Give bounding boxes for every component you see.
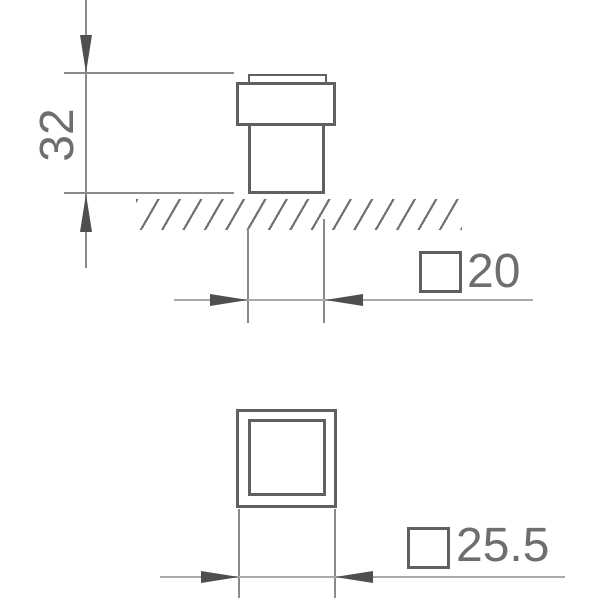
square-section-symbol-icon <box>419 251 462 293</box>
arrowhead-right-icon <box>210 294 248 306</box>
arrowhead-up-icon <box>80 194 92 232</box>
arrowhead-right-icon <box>201 571 239 583</box>
technical-drawing-canvas: 32 20 25.5 <box>0 0 600 600</box>
square-section-symbol-icon <box>407 527 450 569</box>
part-body-outline <box>248 123 325 194</box>
arrowhead-down-icon <box>80 35 92 73</box>
base-extension-line-left <box>238 509 240 598</box>
width-extension-line-right <box>323 219 325 323</box>
part-flange-outline <box>236 82 336 126</box>
width-extension-line-left <box>247 228 249 323</box>
width-dimension-value: 20 <box>467 248 520 296</box>
height-dimension-value: 32 <box>34 108 82 161</box>
base-dimension-value: 25.5 <box>456 522 549 570</box>
base-extension-line-right <box>334 509 336 598</box>
arrowhead-left-icon <box>325 294 363 306</box>
base-inner-square-outline <box>248 419 326 496</box>
arrowhead-left-icon <box>335 571 373 583</box>
ground-hatching <box>136 199 462 230</box>
